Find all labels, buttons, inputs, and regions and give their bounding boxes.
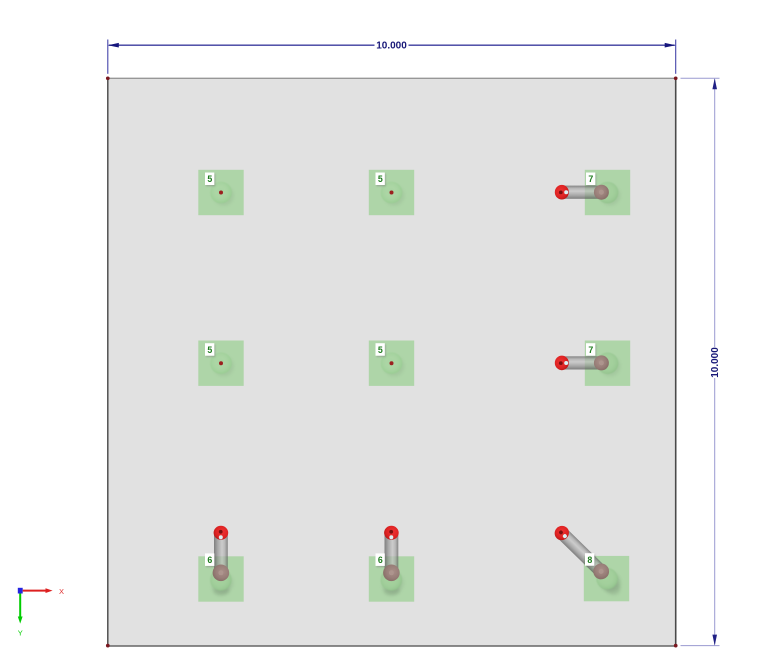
svg-text:5: 5 <box>378 174 383 184</box>
svg-text:7: 7 <box>588 174 593 184</box>
svg-text:7: 7 <box>588 345 593 355</box>
svg-text:6: 6 <box>378 555 383 565</box>
svg-text:Y: Y <box>18 629 23 638</box>
svg-text:8: 8 <box>587 555 592 565</box>
svg-text:5: 5 <box>207 345 212 355</box>
svg-text:6: 6 <box>207 555 212 565</box>
svg-text:10.000: 10.000 <box>376 41 407 52</box>
svg-text:5: 5 <box>378 345 383 355</box>
svg-text:5: 5 <box>207 174 212 184</box>
svg-text:10.000: 10.000 <box>710 347 721 378</box>
svg-text:X: X <box>59 587 64 596</box>
